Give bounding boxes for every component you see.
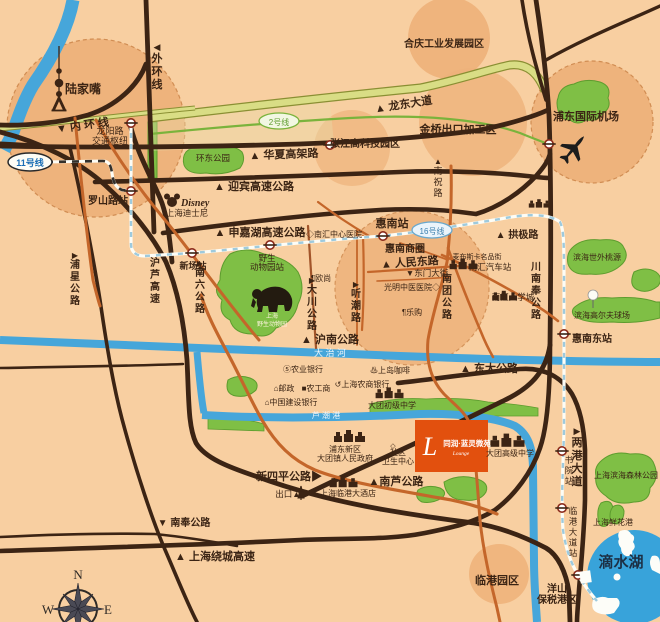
svg-text:金桥出口加工区: 金桥出口加工区 [419, 122, 497, 136]
svg-text:麦布斯卡名品街: 麦布斯卡名品街 [453, 252, 502, 261]
svg-text:南六公路: 南六公路 [195, 266, 206, 315]
svg-text:◇南汇中心医院: ◇南汇中心医院 [306, 229, 362, 239]
svg-text:罗山路站: 罗山路站 [88, 194, 128, 207]
svg-text:◇: ◇ [390, 443, 396, 450]
svg-text:滴水湖: 滴水湖 [598, 553, 643, 571]
svg-text:上海迪士尼: 上海迪士尼 [166, 208, 209, 218]
svg-text:大 治 河: 大 治 河 [314, 347, 346, 358]
svg-text:惠南站: 惠南站 [376, 216, 409, 230]
svg-text:上海: 上海 [266, 312, 278, 320]
svg-text:▲ 申嘉湖高速公路: ▲ 申嘉湖高速公路 [215, 225, 307, 239]
svg-text:▶: ▶ [353, 280, 360, 289]
svg-text:▶: ▶ [574, 426, 581, 436]
svg-text:▶: ▶ [72, 251, 79, 260]
svg-text:▲ 拱极路: ▲ 拱极路 [496, 228, 540, 241]
svg-text:惠南商圈: 惠南商圈 [385, 242, 425, 255]
svg-text:光明中医医院◇: 光明中医医院◇ [384, 282, 440, 292]
svg-text:南汇汽车站: 南汇汽车站 [469, 262, 512, 272]
svg-text:南团公路: 南团公路 [442, 272, 453, 321]
svg-text:浦东新区: 浦东新区 [329, 444, 361, 454]
svg-text:川南奉公路: 川南奉公路 [530, 261, 542, 321]
svg-text:外环线: 外环线 [151, 51, 163, 91]
svg-text:滨海高尔夫球场: 滨海高尔夫球场 [574, 310, 630, 320]
svg-text:¶乐购: ¶乐购 [402, 307, 422, 317]
svg-text:♨上岛咖啡: ♨上岛咖啡 [370, 365, 410, 375]
svg-text:书院站: 书院站 [565, 455, 574, 486]
svg-text:浦东国际机场: 浦东国际机场 [553, 109, 619, 123]
svg-text:上海临港大酒店: 上海临港大酒店 [320, 488, 376, 498]
svg-text:▶: ▶ [197, 259, 204, 268]
svg-text:2号线: 2号线 [269, 117, 289, 127]
svg-text:南祝路: 南祝路 [433, 165, 442, 198]
svg-text:▲ 东大公路: ▲ 东大公路 [460, 361, 519, 375]
svg-text:临港大道站: 临港大道站 [569, 506, 578, 558]
svg-text:▲南芦公路: ▲南芦公路 [369, 474, 425, 488]
svg-text:惠南东站: 惠南东站 [572, 332, 612, 345]
svg-text:W: W [42, 602, 55, 617]
svg-text:大川公路: 大川公路 [306, 283, 318, 332]
svg-text:▲ 迎宾高速公路: ▲ 迎宾高速公路 [214, 179, 295, 193]
svg-text:合庆工业发展园区: 合庆工业发展园区 [403, 37, 484, 50]
svg-text:同润·蓝灵微苑: 同润·蓝灵微苑 [443, 438, 491, 448]
svg-text:洋山: 洋山 [547, 582, 567, 595]
svg-text:临港园区: 临港园区 [475, 573, 519, 587]
svg-text:卫生中心: 卫生中心 [382, 456, 414, 466]
svg-text:⌂中国建设银行: ⌂中国建设银行 [265, 397, 318, 407]
svg-text:滨海世外桃源: 滨海世外桃源 [573, 252, 621, 262]
svg-text:出口▲: 出口▲ [275, 489, 300, 499]
svg-text:保税港区: 保税港区 [536, 593, 577, 606]
svg-text:▶: ▶ [309, 276, 316, 285]
svg-text:大团高级中学: 大团高级中学 [486, 448, 534, 458]
svg-text:◀: ◀ [154, 42, 161, 52]
svg-text:■农工商: ■农工商 [302, 383, 331, 393]
svg-text:张江高科技园区: 张江高科技园区 [330, 137, 400, 150]
svg-text:大团镇人民政府: 大团镇人民政府 [317, 453, 373, 463]
svg-text:11号线: 11号线 [16, 157, 44, 168]
svg-text:16号线: 16号线 [420, 226, 445, 236]
svg-text:N: N [73, 567, 83, 582]
svg-text:E: E [104, 602, 112, 617]
svg-text:动物园站: 动物园站 [250, 262, 285, 272]
svg-text:上海滨海森林公园: 上海滨海森林公园 [594, 470, 658, 480]
svg-text:环东公园: 环东公园 [196, 153, 230, 163]
svg-text:芦 潮 港: 芦 潮 港 [312, 410, 340, 420]
svg-text:野生动物园: 野生动物园 [257, 320, 287, 328]
svg-text:L: L [422, 432, 437, 461]
svg-text:⑤农业银行: ⑤农业银行 [283, 364, 323, 374]
svg-text:上海鲜花港: 上海鲜花港 [593, 517, 633, 527]
svg-text:交通枢纽: 交通枢纽 [92, 135, 128, 146]
svg-text:大团初级中学: 大团初级中学 [368, 400, 416, 410]
svg-text:⌂邮政: ⌂邮政 [274, 383, 295, 393]
svg-text:▼ 南奉公路: ▼ 南奉公路 [158, 516, 212, 529]
svg-text:▲ 沪南公路: ▲ 沪南公路 [301, 332, 360, 346]
svg-text:陆家嘴: 陆家嘴 [65, 81, 101, 96]
svg-text:▲: ▲ [434, 157, 442, 166]
svg-text:↺上海农商银行: ↺上海农商银行 [335, 379, 390, 389]
svg-text:龙阳路: 龙阳路 [96, 125, 123, 136]
svg-text:Lounge: Lounge [452, 451, 470, 457]
svg-text:沪芦高速: 沪芦高速 [150, 256, 160, 305]
svg-text:新四平公路▶: 新四平公路▶ [256, 469, 322, 483]
svg-text:浦星公路: 浦星公路 [70, 258, 81, 307]
svg-text:南汇大学城: 南汇大学城 [492, 292, 535, 302]
svg-text:听潮路: 听潮路 [351, 287, 362, 324]
svg-text:▲ 上海绕城高速: ▲ 上海绕城高速 [175, 549, 255, 563]
